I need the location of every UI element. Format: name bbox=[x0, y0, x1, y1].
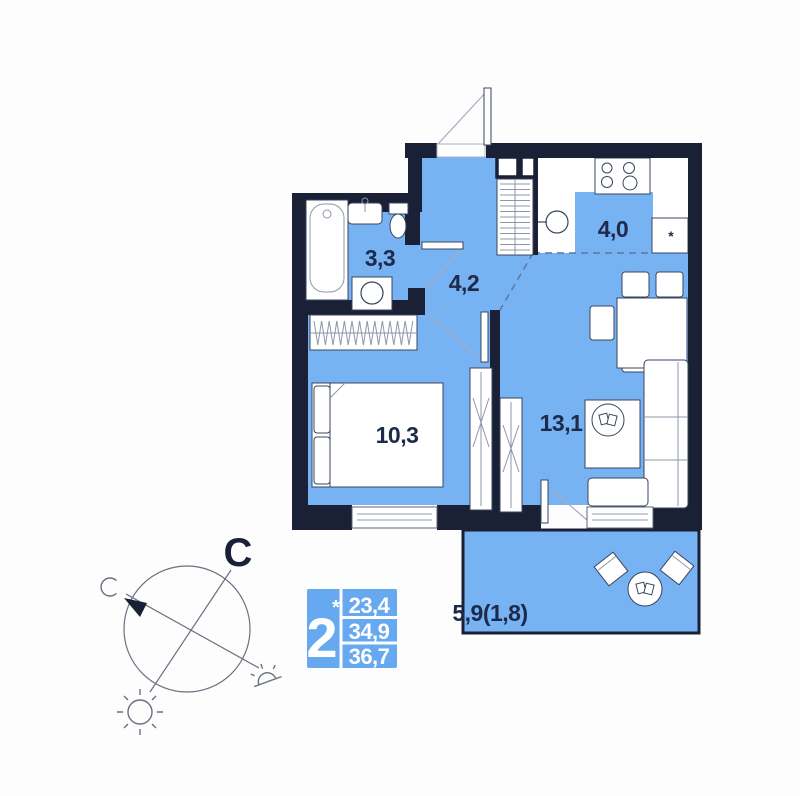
sliding-wardrobe-icon bbox=[470, 368, 492, 510]
window-icon bbox=[352, 507, 437, 528]
fridge-mark: * bbox=[668, 228, 674, 244]
info-badge: 2 * 23,4 34,9 36,7 bbox=[306, 589, 397, 669]
sun-icon bbox=[117, 689, 163, 735]
washing-machine-icon bbox=[352, 277, 392, 310]
entry-door-icon bbox=[437, 88, 491, 157]
closet-icon bbox=[497, 179, 533, 255]
floor-plan: 5,9(1,8) * bbox=[0, 0, 800, 796]
window-icon bbox=[587, 507, 653, 528]
compass-circle bbox=[124, 566, 250, 692]
fridge-icon: * bbox=[652, 218, 688, 253]
ventilation-shaft-icon bbox=[497, 157, 535, 177]
bedroom-area-label: 10,3 bbox=[376, 422, 419, 448]
bathroom-area-label: 3,3 bbox=[365, 245, 395, 271]
wall bbox=[688, 143, 702, 530]
area-apartment: 34,9 bbox=[349, 619, 390, 644]
compass-north-line bbox=[150, 570, 231, 692]
stove-icon bbox=[595, 158, 650, 194]
living-area-label: 13,1 bbox=[540, 410, 583, 436]
chair-icon bbox=[656, 272, 683, 297]
balcony-area-label: 5,9(1,8) bbox=[452, 600, 527, 626]
sunset-icon bbox=[248, 659, 282, 687]
area-living: 23,4 bbox=[349, 593, 391, 618]
balcony: 5,9(1,8) bbox=[452, 530, 699, 633]
chair-icon bbox=[590, 306, 614, 340]
moon-icon bbox=[101, 578, 116, 596]
wall bbox=[653, 505, 702, 530]
dining-table-icon bbox=[617, 298, 687, 368]
bathtub-icon bbox=[306, 200, 348, 300]
hallway-area-label: 4,2 bbox=[449, 270, 479, 296]
compass: С bbox=[101, 531, 281, 735]
area-total: 36,7 bbox=[349, 644, 390, 669]
wall bbox=[292, 505, 352, 530]
floor-plan-page: 5,9(1,8) * bbox=[0, 0, 800, 796]
room-count-note-mark: * bbox=[332, 597, 340, 619]
sliding-wardrobe-icon bbox=[500, 398, 522, 512]
kitchen-area-label: 4,0 bbox=[598, 216, 628, 242]
chair-icon bbox=[622, 272, 649, 297]
desk-icon bbox=[585, 400, 640, 468]
room-hallway: 4,2 bbox=[449, 270, 479, 296]
balcony-table-icon bbox=[628, 572, 662, 606]
toilet-icon bbox=[389, 203, 408, 238]
compass-north-label: С bbox=[224, 531, 253, 575]
wardrobe-icon bbox=[310, 315, 417, 350]
wall bbox=[405, 212, 420, 245]
